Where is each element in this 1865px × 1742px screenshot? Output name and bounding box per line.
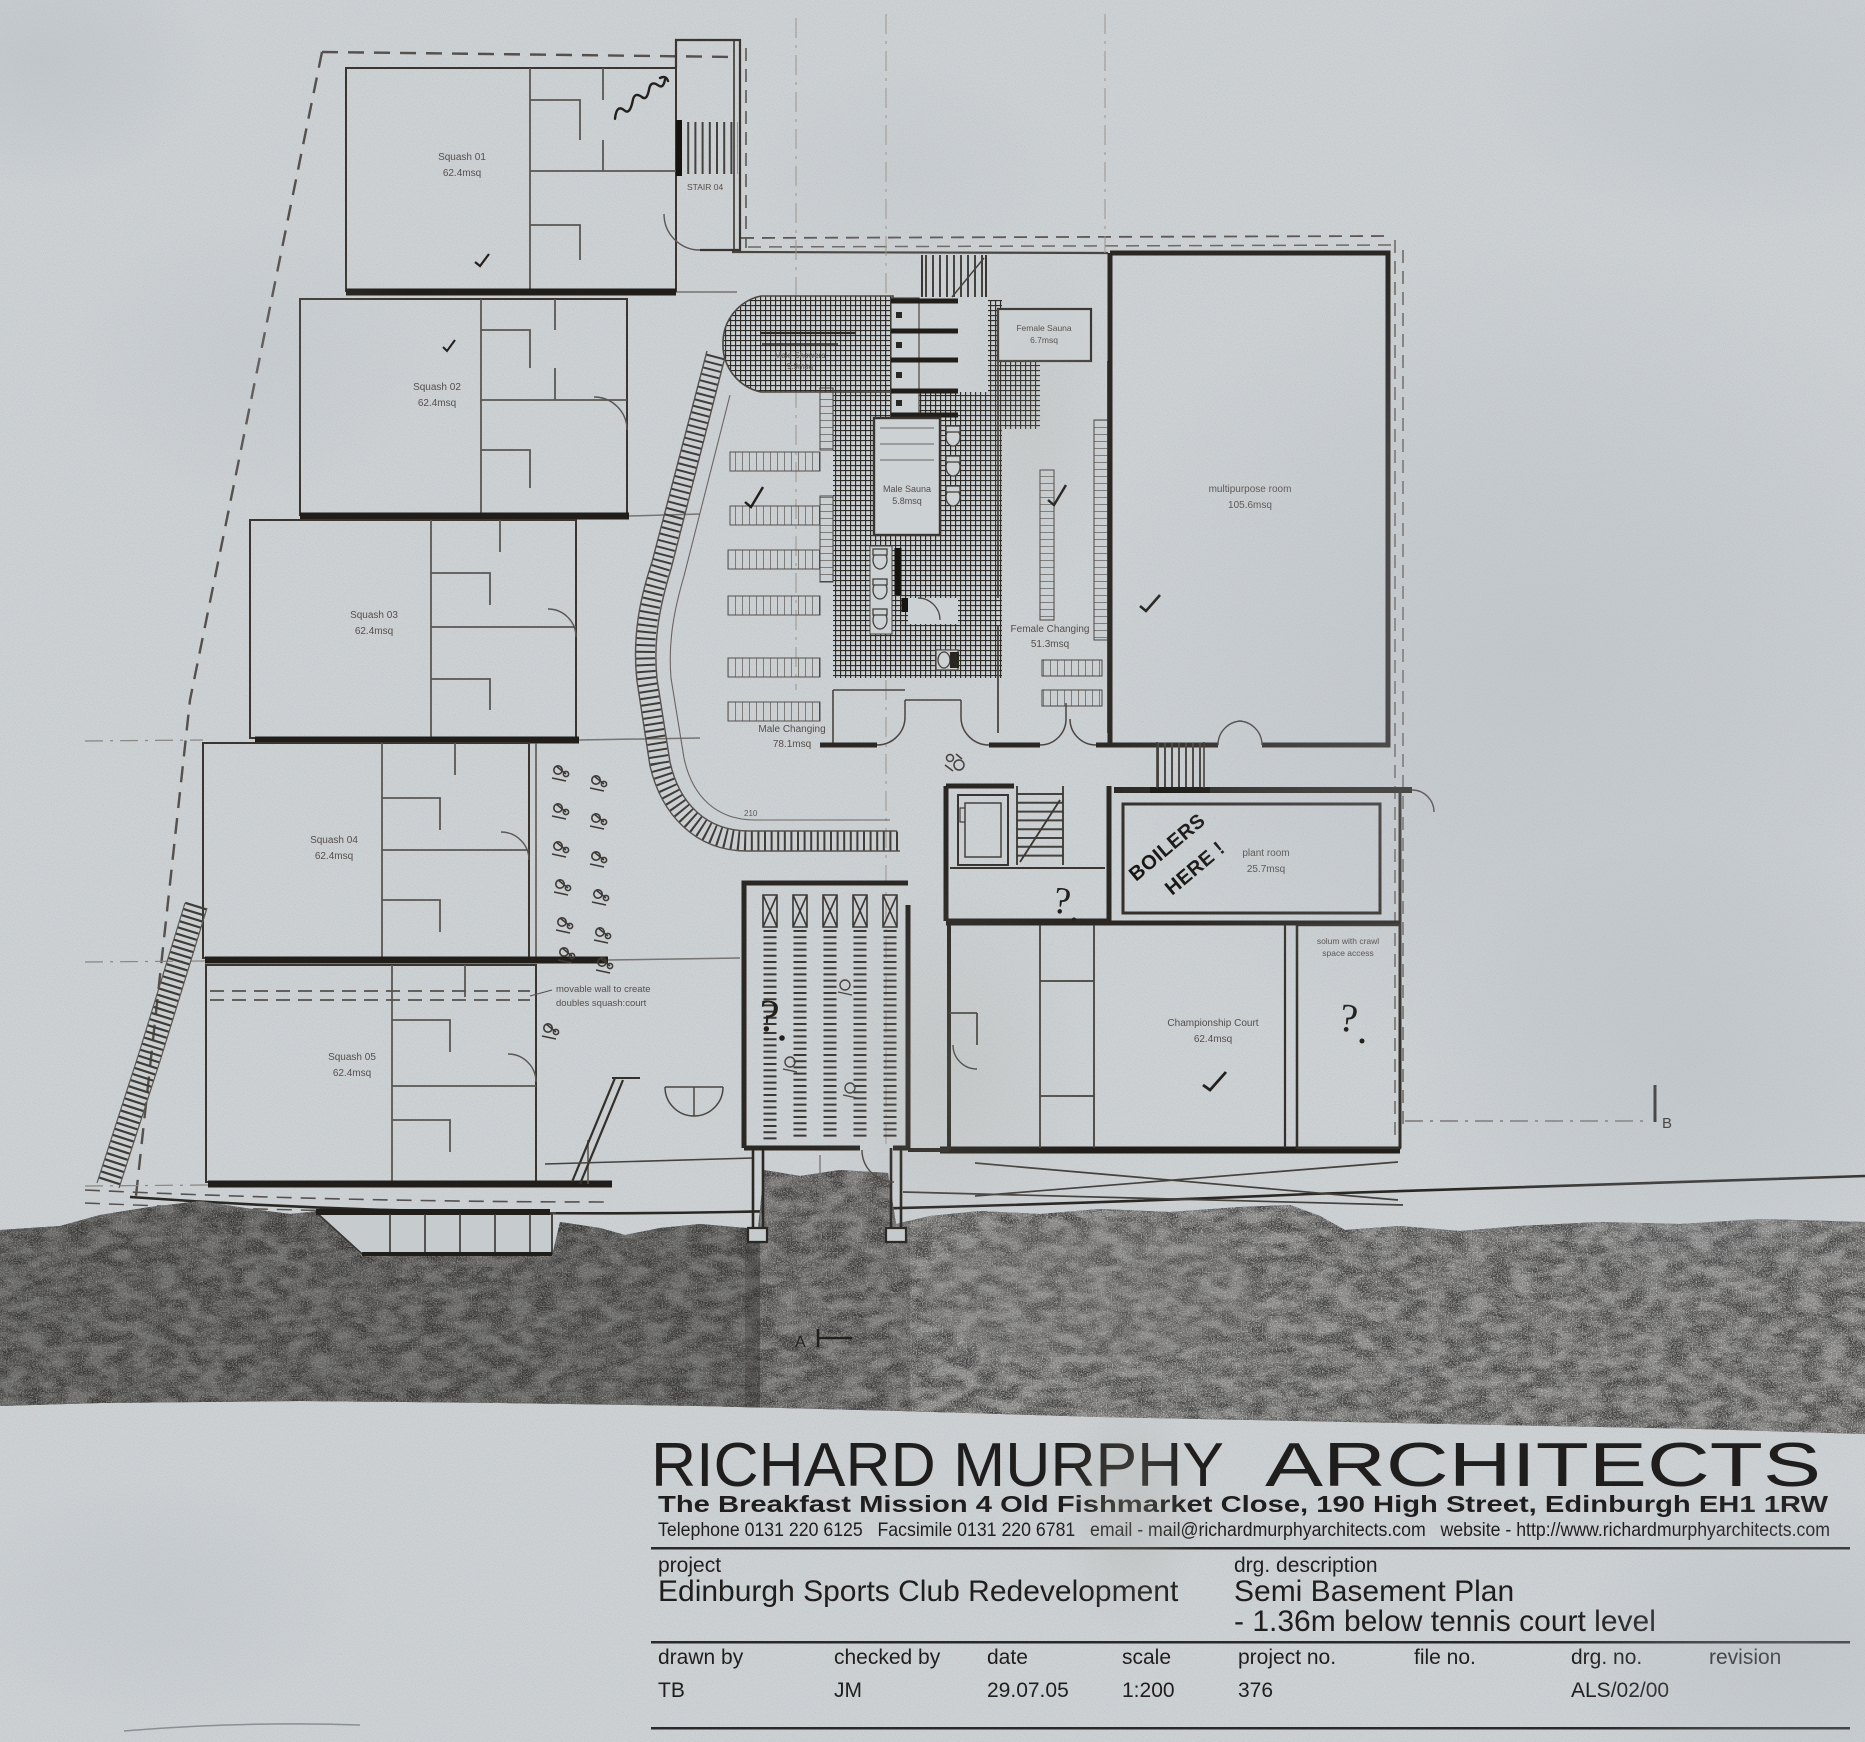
svg-text:A: A <box>795 1334 806 1351</box>
svg-text:210: 210 <box>744 809 758 818</box>
svg-text:51.3msq: 51.3msq <box>1031 639 1069 650</box>
svg-text:JM: JM <box>834 1679 862 1702</box>
svg-text:Squash 03: Squash 03 <box>350 610 398 621</box>
svg-text:ARCHITECTS: ARCHITECTS <box>1265 1431 1821 1500</box>
svg-text:Squash 04: Squash 04 <box>310 835 358 846</box>
svg-text:376: 376 <box>1238 1679 1273 1702</box>
svg-text:Squash 05: Squash 05 <box>328 1052 376 1063</box>
svg-text:Squash 01: Squash 01 <box>438 152 486 163</box>
svg-text:TB: TB <box>658 1679 685 1702</box>
svg-text:checked by: checked by <box>834 1646 941 1669</box>
svg-text:STAIR 04: STAIR 04 <box>687 182 723 192</box>
svg-text:1:200: 1:200 <box>1122 1679 1175 1702</box>
svg-text:movable wall to create: movable wall to create <box>556 984 651 995</box>
svg-text:Male Changing: Male Changing <box>758 724 825 735</box>
svg-text:The Breakfast Mission 4 Old Fi: The Breakfast Mission 4 Old Fishmarket C… <box>658 1491 1828 1517</box>
svg-text:78.1msq: 78.1msq <box>773 739 811 750</box>
svg-text:Championship Court: Championship Court <box>1167 1018 1258 1029</box>
svg-text:doubles squash:court: doubles squash:court <box>556 998 647 1009</box>
svg-text:62.4msq: 62.4msq <box>355 626 393 637</box>
svg-text:62.4msq: 62.4msq <box>333 1068 371 1079</box>
svg-text:date: date <box>987 1646 1028 1669</box>
svg-text:62.4msq: 62.4msq <box>1194 1034 1232 1045</box>
svg-text:scale: scale <box>1122 1646 1171 1669</box>
svg-text:drawn by: drawn by <box>658 1646 744 1669</box>
svg-text:project: project <box>658 1554 721 1577</box>
svg-text:drg. description: drg. description <box>1234 1554 1378 1577</box>
svg-text:62.4msq: 62.4msq <box>443 168 481 179</box>
svg-text:Female Changing: Female Changing <box>1011 624 1090 635</box>
svg-text:Male Sauna: Male Sauna <box>883 484 931 494</box>
svg-text:9.9msq: 9.9msq <box>787 362 813 371</box>
svg-text:file no.: file no. <box>1414 1646 1476 1669</box>
svg-text:5.8msq: 5.8msq <box>892 496 922 506</box>
svg-text:project no.: project no. <box>1238 1646 1336 1669</box>
svg-text:Semi Basement Plan: Semi Basement Plan <box>1234 1575 1514 1608</box>
svg-text:Male Showers: Male Showers <box>775 351 826 360</box>
svg-text:62.4msq: 62.4msq <box>315 851 353 862</box>
svg-text:29.07.05: 29.07.05 <box>987 1679 1069 1702</box>
svg-text:62.4msq: 62.4msq <box>418 398 456 409</box>
